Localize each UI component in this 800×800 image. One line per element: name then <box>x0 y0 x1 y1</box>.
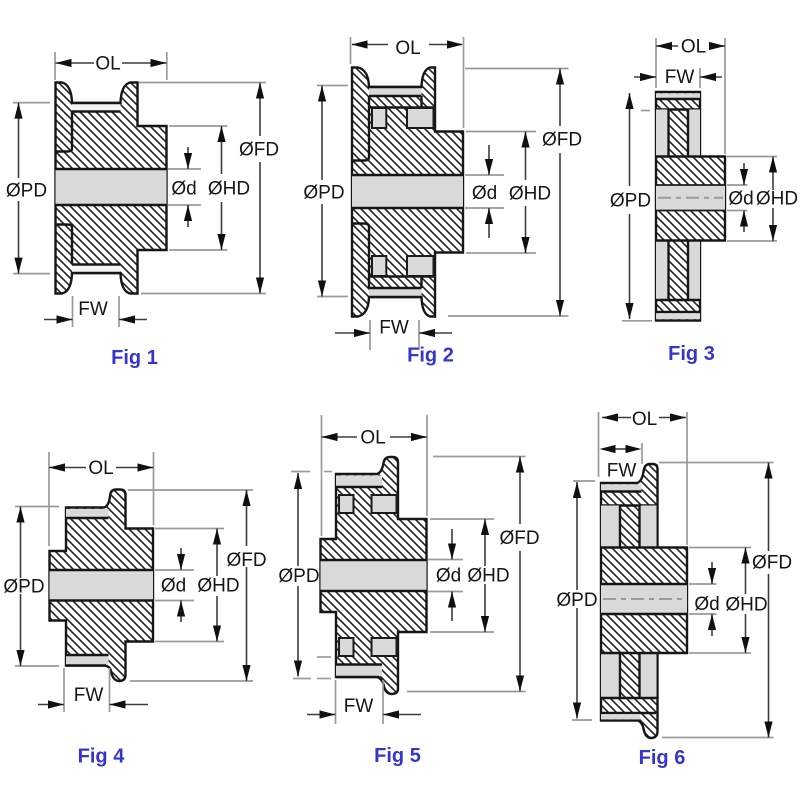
svg-text:ØHD: ØHD <box>509 184 551 205</box>
svg-text:Ød: Ød <box>436 566 461 587</box>
svg-text:Fig 2: Fig 2 <box>407 345 454 367</box>
svg-text:ØPD: ØPD <box>6 181 47 202</box>
svg-text:FW: FW <box>78 299 108 320</box>
svg-text:Ød: Ød <box>161 576 186 597</box>
svg-text:OL: OL <box>88 458 113 479</box>
svg-text:OL: OL <box>632 409 657 430</box>
svg-text:ØHD: ØHD <box>467 566 509 587</box>
svg-text:ØPD: ØPD <box>278 566 319 587</box>
svg-text:ØFD: ØFD <box>542 130 582 151</box>
svg-text:Ød: Ød <box>728 189 753 210</box>
svg-text:FW: FW <box>344 696 374 717</box>
svg-text:OL: OL <box>681 37 706 58</box>
svg-text:OL: OL <box>395 38 420 59</box>
svg-text:ØFD: ØFD <box>752 553 792 574</box>
svg-text:ØPD: ØPD <box>556 590 597 611</box>
svg-text:Ød: Ød <box>171 179 196 200</box>
svg-text:ØPD: ØPD <box>3 577 44 598</box>
svg-text:FW: FW <box>74 685 104 706</box>
svg-text:ØFD: ØFD <box>226 550 266 571</box>
svg-text:ØPD: ØPD <box>610 191 651 212</box>
svg-text:Fig 1: Fig 1 <box>111 347 158 369</box>
svg-text:OL: OL <box>360 428 385 449</box>
svg-text:ØFD: ØFD <box>239 140 279 161</box>
svg-text:ØHD: ØHD <box>725 595 767 616</box>
svg-text:FW: FW <box>379 318 409 339</box>
svg-text:Fig 4: Fig 4 <box>78 746 126 768</box>
svg-text:OL: OL <box>95 54 120 75</box>
svg-text:ØFD: ØFD <box>499 528 539 549</box>
svg-text:FW: FW <box>607 461 637 482</box>
svg-text:ØHD: ØHD <box>208 179 250 200</box>
svg-text:FW: FW <box>665 67 695 88</box>
svg-text:Fig 5: Fig 5 <box>374 745 421 767</box>
svg-text:Ød: Ød <box>472 183 497 204</box>
svg-text:ØPD: ØPD <box>303 183 344 204</box>
svg-text:Fig 3: Fig 3 <box>668 343 715 365</box>
svg-text:ØHD: ØHD <box>756 189 798 210</box>
svg-text:Fig 6: Fig 6 <box>639 747 686 769</box>
svg-text:Ød: Ød <box>694 594 719 615</box>
svg-text:ØHD: ØHD <box>197 576 239 597</box>
